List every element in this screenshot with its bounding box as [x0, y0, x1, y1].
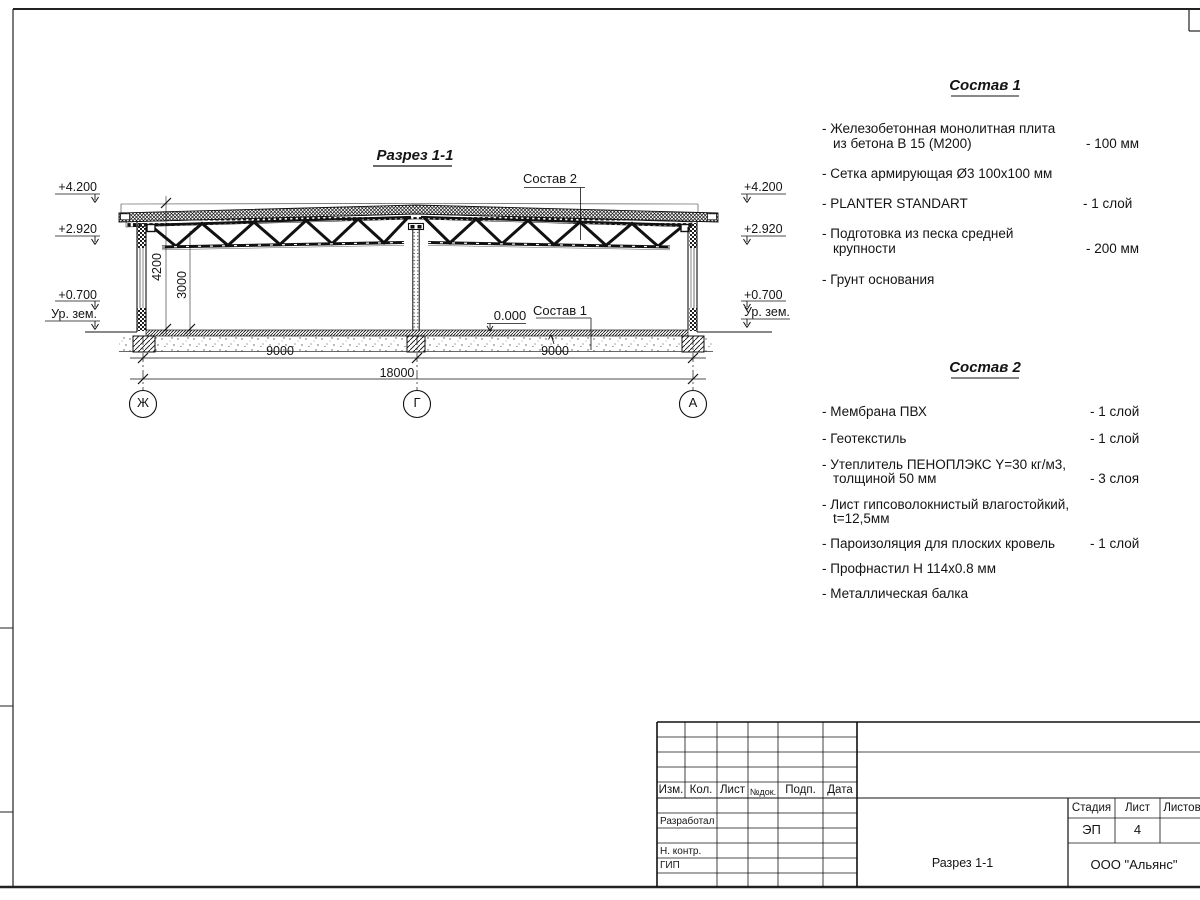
elevation-plinth-right: +0.700: [744, 288, 814, 302]
titleblock-header-izm: Изм.: [657, 784, 685, 797]
sostav1-item-1-value: - 100 мм: [1086, 136, 1139, 151]
dim-span-right: 9000: [525, 344, 585, 358]
sostav1-item-1-line2: из бетона В 15 (М200): [833, 136, 972, 151]
elevation-roof-right: +4.200: [744, 180, 814, 194]
sostav1-item-5-line1: - Грунт основания: [822, 272, 934, 287]
sostav1-item-3-value: - 1 слой: [1083, 196, 1132, 211]
column-center: [413, 230, 419, 331]
sostav1-item-1-line1: - Железобетонная монолитная плита: [822, 121, 1055, 136]
sostav2-item-1-value: - 1 слой: [1090, 404, 1139, 419]
dim-height-clear: 3000: [175, 271, 189, 299]
sostav1-item-3-line1: - PLANTER STANDART: [822, 196, 968, 211]
titleblock-stage-value: ЭП: [1068, 823, 1115, 838]
sostav2-item-2-value: - 1 слой: [1090, 431, 1139, 446]
dim-total: 18000: [364, 366, 430, 380]
axis-bubble-a: А: [679, 396, 707, 411]
section-title: Разрез 1-1: [340, 148, 490, 165]
sostav2-title: Состав 2: [885, 360, 1085, 377]
axis-bubble-g: Г: [403, 396, 431, 411]
titleblock-row-nkontr: Н. контр.: [660, 846, 701, 857]
wall-right: [688, 222, 697, 332]
titleblock-sheet-value: 4: [1115, 823, 1160, 838]
titleblock-header-data: Дата: [823, 784, 857, 797]
titleblock-doc-title: Разрез 1-1: [860, 856, 1065, 870]
ground-level-label-left: Ур. зем.: [38, 307, 97, 321]
sostav2-item-3-line1: - Утеплитель ПЕНОПЛЭКС Y=30 кг/м3,: [822, 457, 1066, 472]
sostav2-item-2-line1: - Геотекстиль: [822, 431, 906, 446]
sostav1-item-2-line1: - Сетка армирующая Ø3 100х100 мм: [822, 166, 1052, 181]
titleblock-sheets-label: Листов: [1160, 802, 1200, 815]
elevation-truss-left: +2.920: [38, 222, 97, 236]
drawing-sheet: Разрез 1-1 Состав 2 Состав 1 0.000 +4.20…: [0, 0, 1200, 900]
zero-level-mark: 0.000: [482, 309, 538, 324]
sostav1-item-4-value: - 200 мм: [1086, 241, 1139, 256]
sostav2-item-5-line1: - Пароизоляция для плоских кровель: [822, 536, 1055, 551]
ground-level-label-right: Ур. зем.: [744, 305, 814, 319]
titleblock-header-ndok: №док.: [748, 787, 778, 797]
sostav2-item-1-line1: - Мембрана ПВХ: [822, 404, 927, 419]
titleblock-header-kol: Кол.: [685, 784, 717, 797]
titleblock-header-list: Лист: [717, 784, 748, 797]
sostav1-item-4-line1: - Подготовка из песка средней: [822, 226, 1013, 241]
sostav2-item-4-line1: - Лист гипсоволокнистый влагостойкий,: [822, 497, 1069, 512]
sheet-frame: [0, 9, 1200, 887]
sostav2-item-3-value: - 3 слоя: [1090, 471, 1139, 486]
titleblock-sheet-label: Лист: [1115, 802, 1160, 815]
titleblock-header-podp: Подп.: [778, 784, 823, 797]
sostav2-item-7-line1: - Металлическая балка: [822, 586, 968, 601]
elevation-plinth-left: +0.700: [38, 288, 97, 302]
sostav2-reference-label: Состав 2: [504, 172, 596, 187]
elevation-roof-left: +4.200: [38, 180, 97, 194]
sostav1-title: Состав 1: [885, 78, 1085, 95]
elevation-truss-right: +2.920: [744, 222, 814, 236]
dim-span-left: 9000: [250, 344, 310, 358]
sostav2-item-6-line1: - Профнастил Н 114х0.8 мм: [822, 561, 996, 576]
sostav2-item-4-line2: t=12,5мм: [833, 511, 889, 526]
titleblock-stage-label: Стадия: [1068, 802, 1115, 815]
titleblock-row-gip: ГИП: [660, 860, 680, 871]
axis-bubble-zh: Ж: [129, 396, 157, 411]
titleblock-company: ООО "Альянс": [1068, 858, 1200, 873]
sostav2-item-5-value: - 1 слой: [1090, 536, 1139, 551]
titleblock-row-razrabotal: Разработал: [660, 816, 714, 827]
sostav1-item-4-line2: крупности: [833, 241, 896, 256]
sostav2-item-3-line2: толщиной 50 мм: [833, 471, 936, 486]
